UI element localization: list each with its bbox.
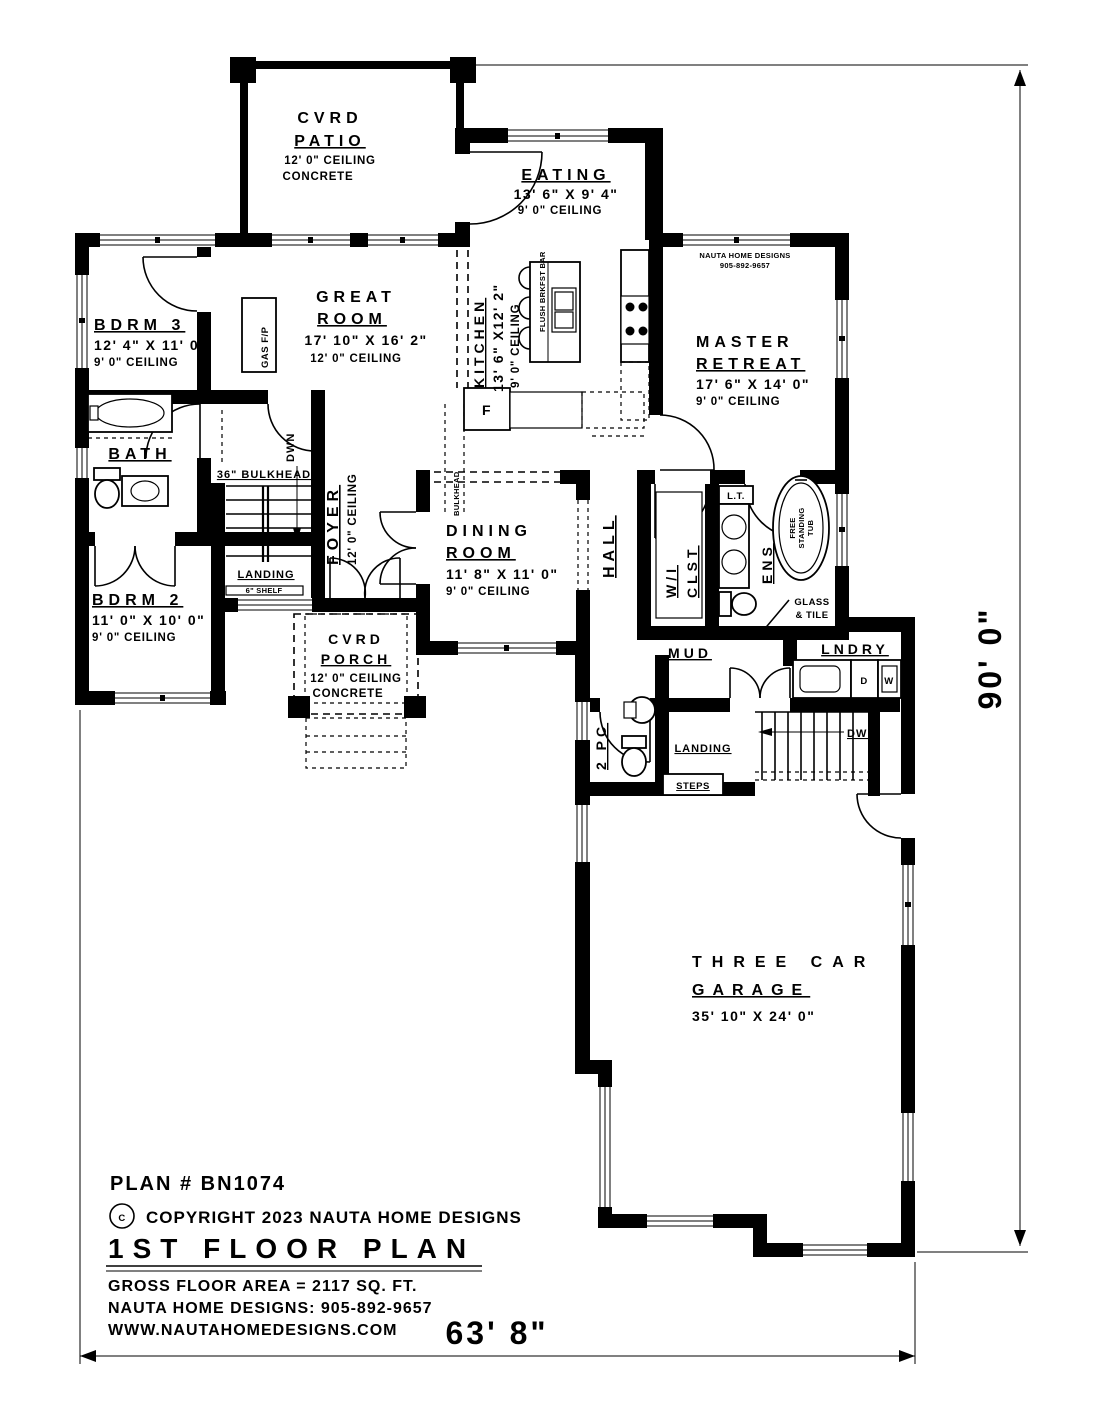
mud-name: MUD [668,645,712,661]
dining-ceiling: 9' 0" CEILING [446,586,530,598]
label-foyer: FOYER 12' 0" CEILING [325,473,359,565]
tub-label-2: STANDING [797,507,806,548]
master-ceiling: 9' 0" CEILING [696,396,780,408]
glass-tile-label-2: & TILE [795,610,828,621]
garage-name-2: GARAGE [692,982,810,999]
window [508,128,608,143]
porch-name-2: PORCH [321,651,392,667]
patio-name-1: CVRD [297,110,362,127]
doors-dining-double [380,512,416,584]
designer-phone: NAUTA HOME DESIGNS: 905-892-9657 [108,1300,433,1317]
website: WWW.NAUTAHOMEDESIGNS.COM [108,1322,397,1339]
bdrm2-ceiling: 9' 0" CEILING [92,632,176,644]
garage-dims: 35' 10" X 24' 0" [692,1008,815,1024]
bath-name: BATH [108,446,171,463]
label-cvrd-porch: CVRD PORCH 12' 0" CEILING CONCRETE [310,631,402,700]
doors-mud-double [730,668,790,698]
watermark: NAUTA HOME DESIGNS 905-892-9657 [699,251,790,270]
watermark-line-1: NAUTA HOME DESIGNS [699,251,790,260]
label-master-retreat: MASTER RETREAT 17' 6" X 14' 0" 9' 0" CEI… [696,334,810,408]
great-name-2: ROOM [317,311,387,328]
eating-ceiling: 9' 0" CEILING [518,205,602,217]
window [683,233,790,247]
window [575,805,590,862]
kitchen-dims: 13' 6" X12' 2" [490,283,506,392]
master-name-2: RETREAT [696,356,805,373]
great-name-1: GREAT [316,289,396,306]
label-bath: BATH [108,446,171,463]
landing-mud-label: LANDING [674,743,731,755]
fridge-label: F [482,402,492,418]
porch-ceiling: 12' 0" CEILING [310,673,402,685]
bdrm3-name: BDRM 3 [94,317,185,334]
floor-plan-drawing: 90' 0" 63' 8" [0,0,1100,1424]
2pc-name: 2 PC [593,723,609,770]
floor-title: 1ST FLOOR PLAN [108,1233,475,1264]
shelf-label: 6" SHELF [246,586,283,595]
door-master [660,415,714,470]
window [803,1243,867,1257]
window [272,233,350,247]
label-eating: EATING 13' 6" X 9' 4" 9' 0" CEILING [514,167,619,217]
kitchen-ceiling: 9' 0" CEILING [510,304,522,388]
patio-name-2: PATIO [294,133,366,150]
wic-name-2: CLST [684,545,700,598]
width-dimension-label: 63' 8" [445,1315,548,1351]
washer-label: W [884,676,893,687]
window [901,1113,915,1181]
window [901,865,915,945]
patio-note: CONCRETE [283,171,354,183]
window [238,598,312,612]
label-cvrd-patio: CVRD PATIO 12' 0" CEILING CONCRETE [283,110,376,183]
eating-name: EATING [521,167,610,184]
garage-name-1: THREE CAR [692,954,875,971]
steps-label: STEPS [676,781,710,792]
floor-plan-sheet: 90' 0" 63' 8" [0,0,1100,1424]
dining-dims: 11' 8" X 11' 0" [446,566,559,582]
glass-tile-label-1: GLASS [794,597,829,608]
label-mud: MUD [668,645,712,661]
bulkhead-36-label: 36" BULKHEAD [217,469,311,481]
window [458,641,556,655]
great-ceiling: 12' 0" CEILING [310,353,402,365]
patio-ceiling: 12' 0" CEILING [284,155,376,167]
brkfst-bar-label: FLUSH BRKFST BAR [538,251,547,332]
window [835,300,849,378]
window [835,494,849,566]
foyer-ceiling: 12' 0" CEILING [347,473,359,565]
window [368,233,438,247]
hall-name: HALL [601,515,618,578]
window [598,1087,612,1207]
doors-bdrm2-double [95,546,175,586]
door-garage-man [857,794,901,838]
window [575,702,590,740]
lndry-name: LNDRY [821,641,889,657]
window [75,448,89,478]
porch-note: CONCRETE [313,688,384,700]
tub-label-1: FREE [788,517,797,538]
great-dims: 17' 10" X 16' 2" [304,332,427,348]
landing-foyer-label: LANDING [237,569,294,581]
copyright-symbol: C [118,1213,125,1224]
door-bdrm3 [143,257,197,311]
foyer-name: FOYER [325,485,342,565]
label-lndry: LNDRY [821,641,889,657]
kitchen-name: KITCHEN [471,298,487,388]
bulkhead-label: BULKHEAD [452,471,461,516]
plan-number: PLAN # BN1074 [110,1173,286,1195]
porch-name-1: CVRD [328,631,384,647]
bdrm3-dims: 12' 4" X 11' 0" [94,337,207,353]
dining-name-2: ROOM [446,545,516,562]
window [75,275,89,368]
label-2pc: 2 PC [593,723,609,770]
window [647,1214,713,1228]
eating-dims: 13' 6" X 9' 4" [514,186,619,202]
watermark-line-2: 905-892-9657 [720,261,770,270]
gas-fireplace-label: GAS F/P [260,326,271,368]
label-bdrm3: BDRM 3 12' 4" X 11' 0" 9' 0" CEILING [94,317,207,369]
label-bdrm2: BDRM 2 11' 0" X 10' 0" 9' 0" CEILING [92,592,205,644]
dryer-label: D [860,676,867,687]
copyright-text: COPYRIGHT 2023 NAUTA HOME DESIGNS [146,1208,522,1227]
tub-label-3: TUB [806,520,815,537]
master-name-1: MASTER [696,334,794,351]
label-great-room: GREAT ROOM 17' 10" X 16' 2" 12' 0" CEILI… [304,289,427,365]
label-kitchen: KITCHEN 13' 6" X12' 2" 9' 0" CEILING [471,283,522,392]
dwn-basement-label: DWN [847,728,876,740]
label-hall: HALL [601,515,618,578]
master-dims: 17' 6" X 14' 0" [696,376,810,392]
dwn-foyer-label: DWN [285,433,297,462]
dining-name-1: DINING [446,523,532,540]
label-dining-room: DINING ROOM 11' 8" X 11' 0" 9' 0" CEILIN… [446,523,559,598]
window [115,691,210,705]
window [100,233,215,247]
gross-area: GROSS FLOOR AREA = 2117 SQ. FT. [108,1278,417,1295]
ens-name: ENS [759,543,775,584]
bdrm2-name: BDRM 2 [92,592,183,609]
linen-tower-label: L.T. [727,491,745,502]
bdrm3-ceiling: 9' 0" CEILING [94,357,178,369]
wic-name-1: W/I [663,565,679,598]
depth-dimension-label: 90' 0" [972,606,1008,709]
label-garage: THREE CAR GARAGE 35' 10" X 24' 0" [692,954,875,1024]
bdrm2-dims: 11' 0" X 10' 0" [92,612,205,628]
label-ens: ENS [759,543,775,584]
